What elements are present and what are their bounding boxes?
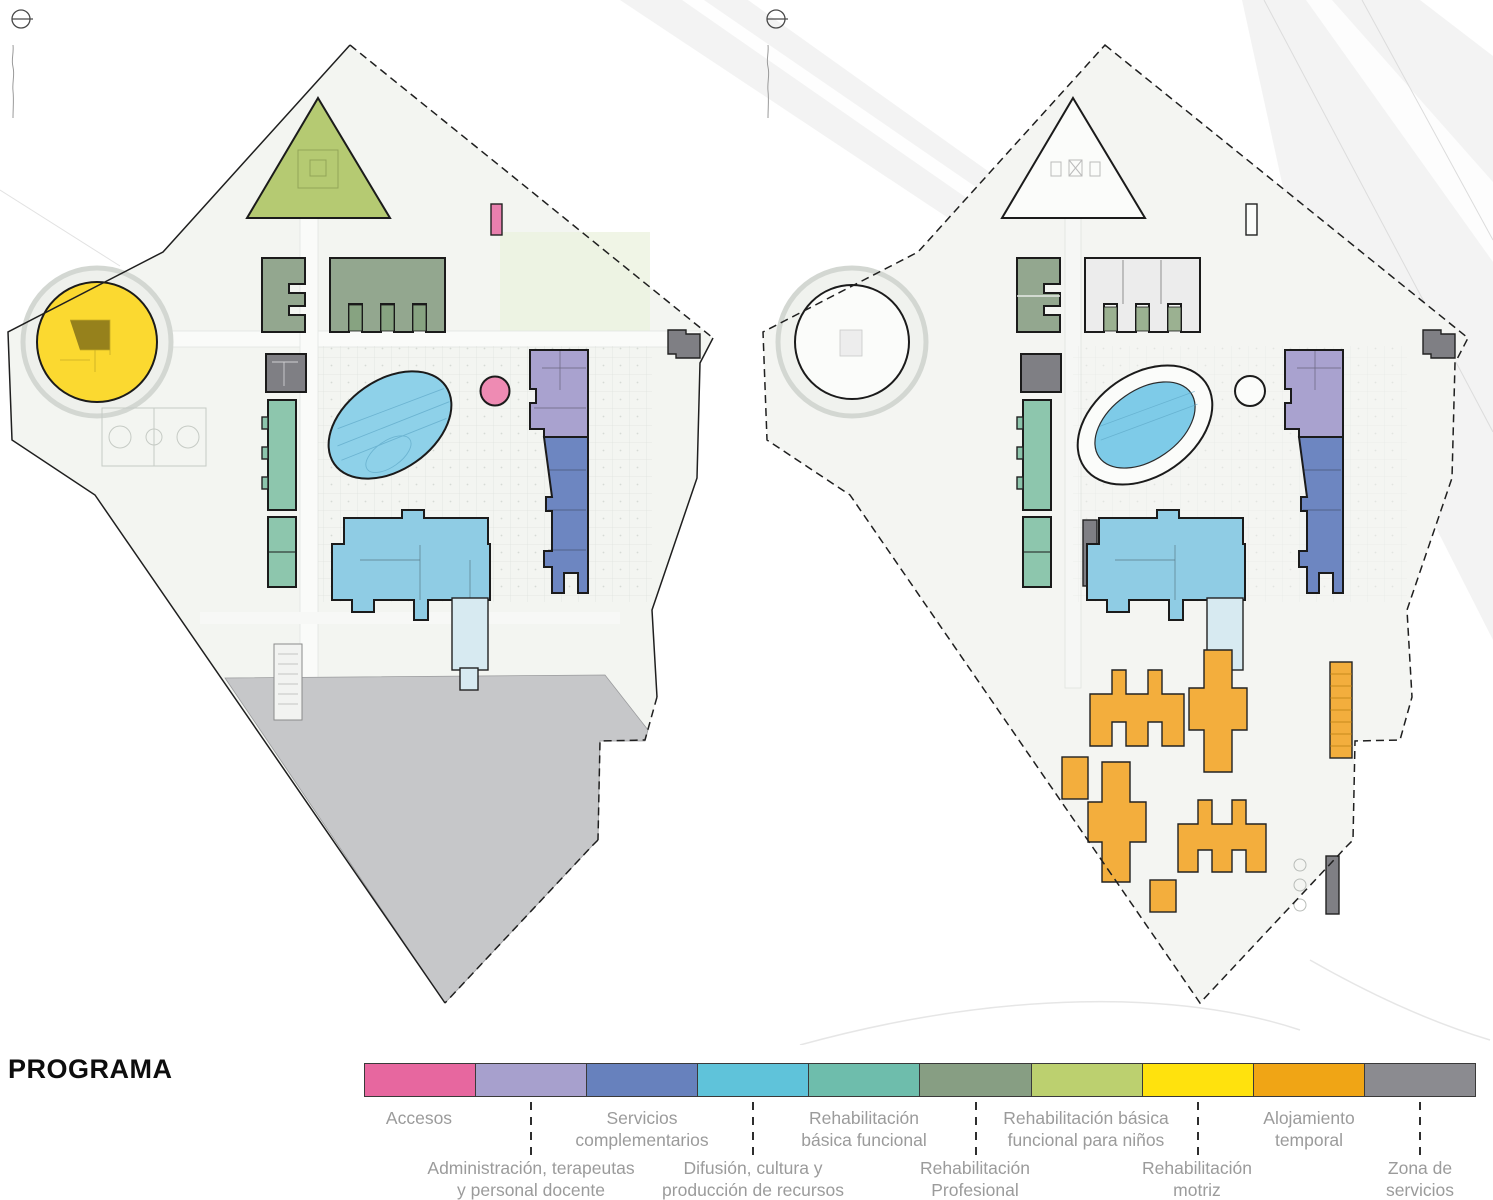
upper-stairs — [1104, 307, 1181, 331]
legend-swatch-rehab-basica — [808, 1063, 920, 1097]
legend-label-rehab-basica: Rehabilitación básica funcional — [734, 1108, 994, 1152]
rehab-funcional-upper-a — [1023, 400, 1051, 510]
legend-swatch-administracion — [475, 1063, 587, 1097]
service-area-zone — [225, 675, 648, 1003]
rehab-funcional-building-a — [268, 400, 296, 510]
green-field — [500, 232, 650, 332]
legend-label-administracion: Administración, terapeutas y personal do… — [401, 1158, 661, 1200]
legend-label-servicios-complementarios: Servicios complementarios — [512, 1108, 772, 1152]
legend-swatch-servicios-complementarios — [586, 1063, 698, 1097]
administration-building — [530, 350, 588, 437]
stairs-block — [274, 644, 302, 720]
tealA-tabs — [262, 417, 268, 489]
legend-label-accesos: Accesos — [289, 1108, 549, 1130]
legend-label-zona-servicios: Zona de servicios — [1290, 1158, 1493, 1200]
legend-label-difusion: Difusión, cultura y producción de recurs… — [623, 1158, 883, 1200]
programa-site-diagram: PROGRAMA Accesos Administración, terapeu… — [0, 0, 1493, 1200]
legend-label-rehab-motriz: Rehabilitación motriz — [1067, 1158, 1327, 1200]
gate-outline — [1246, 204, 1257, 235]
section-mark-left — [12, 45, 13, 118]
rehab-profesional-building-a — [262, 258, 305, 332]
legend-label-rehab-ninos: Rehabilitación básica funcional para niñ… — [956, 1108, 1216, 1152]
page-title: PROGRAMA — [8, 1054, 173, 1085]
sageB-stairs — [349, 305, 426, 331]
legend-label-rehab-profesional: Rehabilitación Profesional — [845, 1158, 1105, 1200]
administration-upper — [1285, 350, 1343, 437]
legend-swatch-rehab-motriz — [1142, 1063, 1254, 1097]
access-pavilion — [481, 377, 510, 406]
small-service-strip — [1326, 856, 1339, 914]
legend-swatch-rehab-ninos — [1031, 1063, 1143, 1097]
services-building-right — [1021, 354, 1061, 392]
service-kiosk — [668, 330, 700, 358]
service-kiosk-right — [1423, 330, 1455, 358]
legend-label-alojamiento: Alojamiento temporal — [1179, 1108, 1439, 1152]
legend-swatch-rehab-profesional — [919, 1063, 1031, 1097]
pavilion-outline — [1235, 376, 1265, 406]
north-icon-left — [12, 10, 33, 28]
legend-swatch-difusion — [697, 1063, 809, 1097]
program-legend-bar — [364, 1063, 1476, 1097]
services-building — [266, 354, 306, 392]
legend-swatch-alojamiento — [1253, 1063, 1365, 1097]
site-plan-left — [8, 45, 713, 1003]
access-gate — [491, 204, 502, 235]
site-plans-svg — [0, 0, 1493, 1045]
rehab-profesional-upper-a — [1017, 258, 1060, 332]
legend-swatch-zona-servicios — [1364, 1063, 1476, 1097]
legend-swatch-accesos — [364, 1063, 476, 1097]
difusion-annex — [452, 598, 488, 670]
